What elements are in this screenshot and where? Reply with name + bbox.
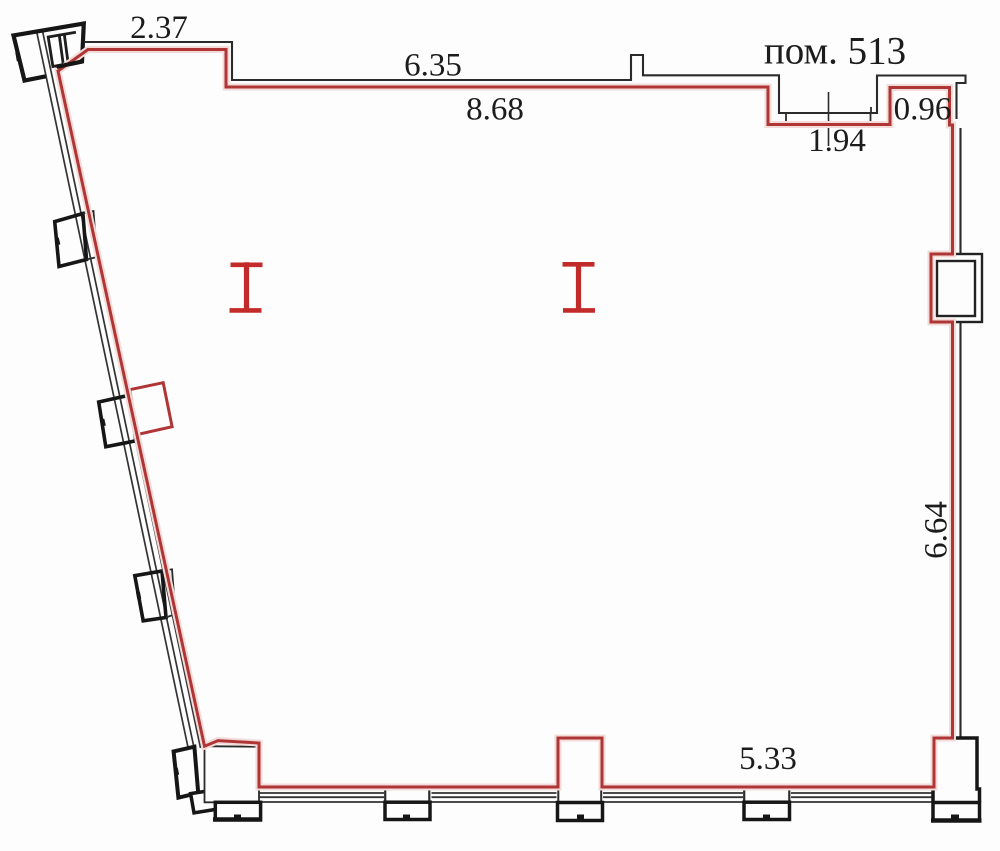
svg-text:0.96: 0.96	[894, 92, 952, 128]
svg-text:пом. 513: пом. 513	[764, 30, 906, 73]
svg-text:8.68: 8.68	[466, 92, 524, 128]
svg-text:2.37: 2.37	[130, 10, 188, 46]
svg-text:6.64: 6.64	[919, 501, 955, 559]
svg-text:5.33: 5.33	[739, 741, 797, 777]
svg-text:6.35: 6.35	[404, 48, 462, 84]
svg-text:1.94: 1.94	[808, 123, 866, 159]
